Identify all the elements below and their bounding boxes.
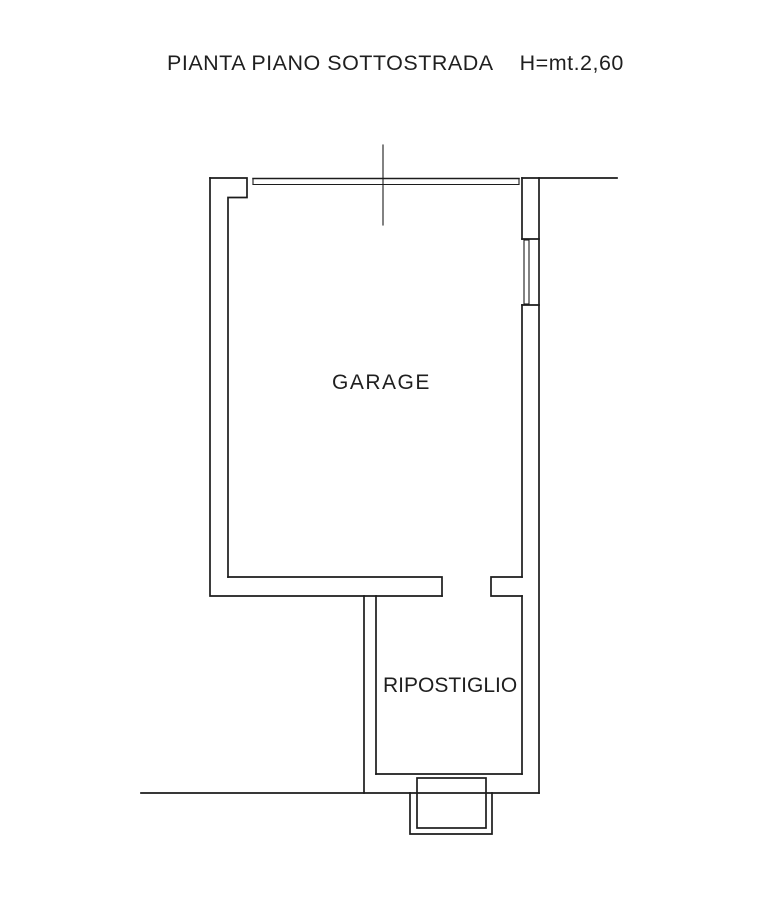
ceiling-height-note: H=mt.2,60 xyxy=(520,53,624,75)
doorway-wall-stub xyxy=(491,577,522,596)
window-frame-rect xyxy=(524,240,529,304)
room-label-ripostiglio: RIPOSTIGLIO xyxy=(383,675,517,696)
thin-symbol-lines xyxy=(253,145,529,304)
floorplan-canvas: PIANTA PIANO SOTTOSTRADAH=mt.2,60 GARAGE… xyxy=(0,0,784,900)
garage-bottom-wall xyxy=(228,577,442,596)
garage-door-end-caps xyxy=(253,179,519,185)
drawing-title-text: PIANTA PIANO SOTTOSTRADA xyxy=(167,51,494,75)
drawing-title: PIANTA PIANO SOTTOSTRADAH=mt.2,60 xyxy=(167,53,624,75)
garage-left-inner-wall-pilaster xyxy=(210,178,247,577)
room-label-garage: GARAGE xyxy=(332,372,431,393)
floorplan-drawing xyxy=(0,0,784,900)
ripostiglio-left-wall xyxy=(364,596,376,793)
wall-lines xyxy=(141,178,617,834)
stair-inner-rect xyxy=(417,778,486,828)
